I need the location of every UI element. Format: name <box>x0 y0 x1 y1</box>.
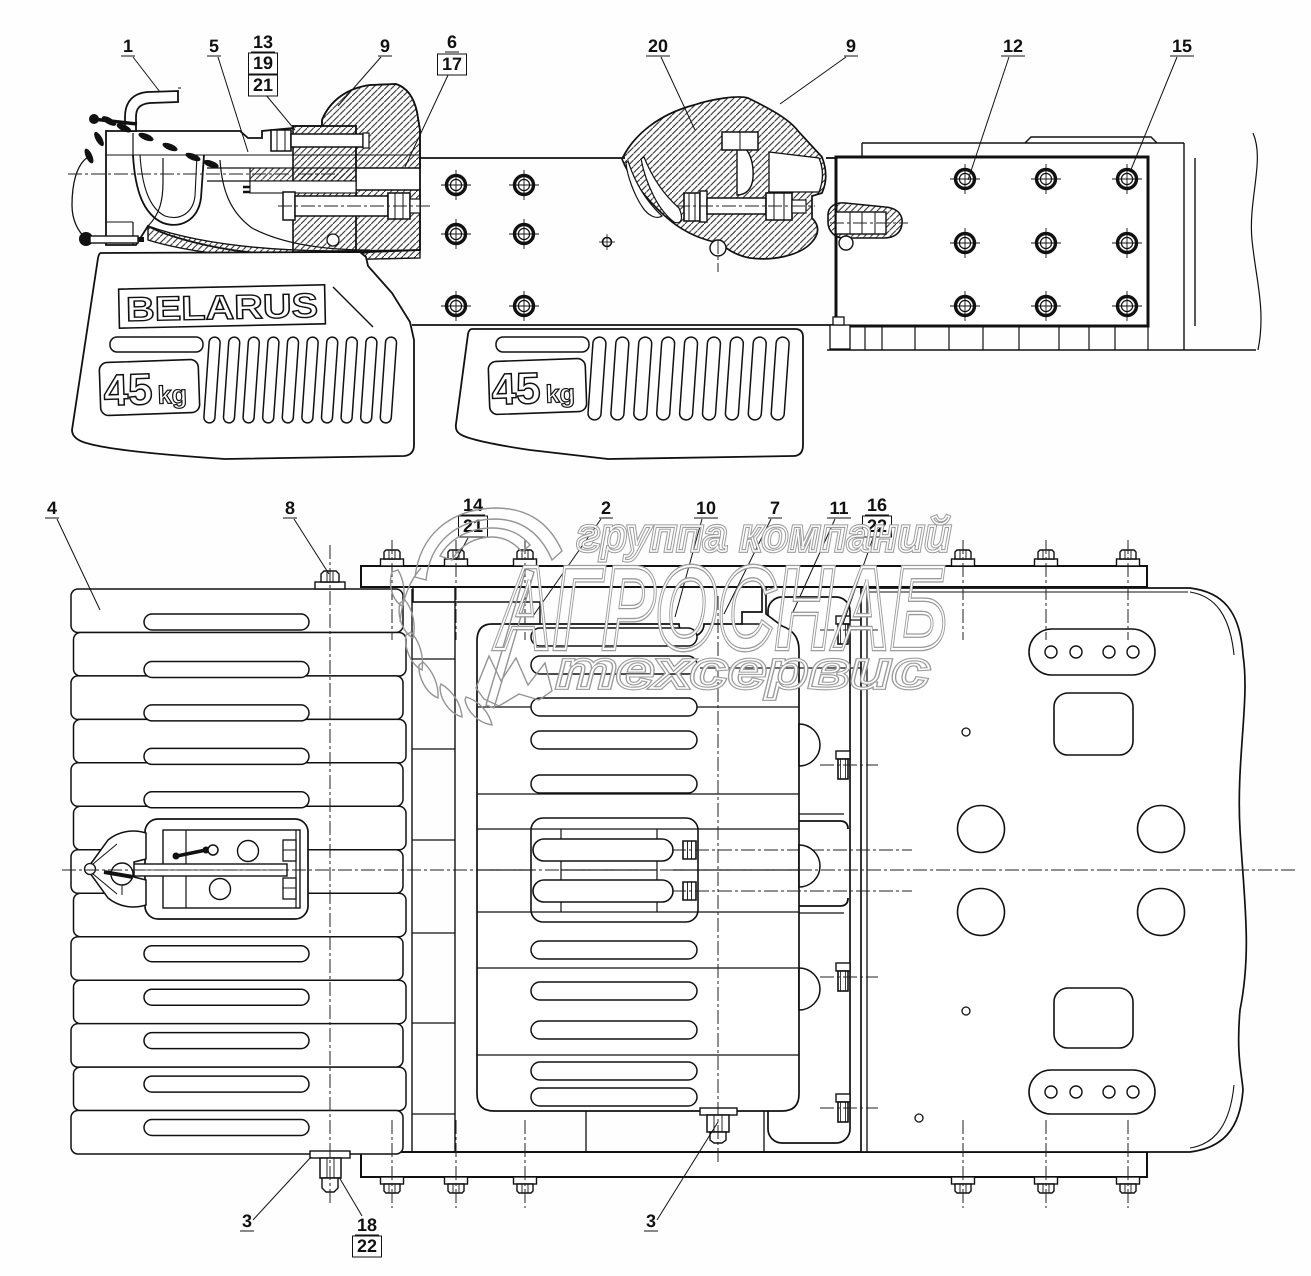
svg-text:22: 22 <box>357 1236 377 1256</box>
svg-text:3: 3 <box>242 1211 252 1231</box>
svg-text:17: 17 <box>442 54 462 74</box>
svg-text:3: 3 <box>646 1211 656 1231</box>
svg-text:5: 5 <box>209 36 219 56</box>
svg-text:19: 19 <box>253 53 273 73</box>
svg-text:18: 18 <box>357 1215 377 1235</box>
svg-text:45: 45 <box>103 365 154 416</box>
svg-text:8: 8 <box>285 498 295 518</box>
svg-text:21: 21 <box>253 75 273 95</box>
svg-text:kg: kg <box>157 381 187 410</box>
svg-text:15: 15 <box>1172 36 1192 56</box>
svg-text:45: 45 <box>491 364 542 415</box>
svg-text:4: 4 <box>47 498 57 518</box>
svg-text:1: 1 <box>123 36 133 56</box>
svg-text:техсервис: техсервис <box>556 641 930 700</box>
svg-text:12: 12 <box>1003 36 1023 56</box>
svg-text:6: 6 <box>447 32 457 52</box>
svg-text:9: 9 <box>846 36 856 56</box>
svg-text:9: 9 <box>380 36 390 56</box>
svg-text:kg: kg <box>545 380 575 409</box>
svg-text:BELARUS: BELARUS <box>126 287 319 329</box>
svg-text:13: 13 <box>253 32 273 52</box>
svg-text:20: 20 <box>648 36 668 56</box>
